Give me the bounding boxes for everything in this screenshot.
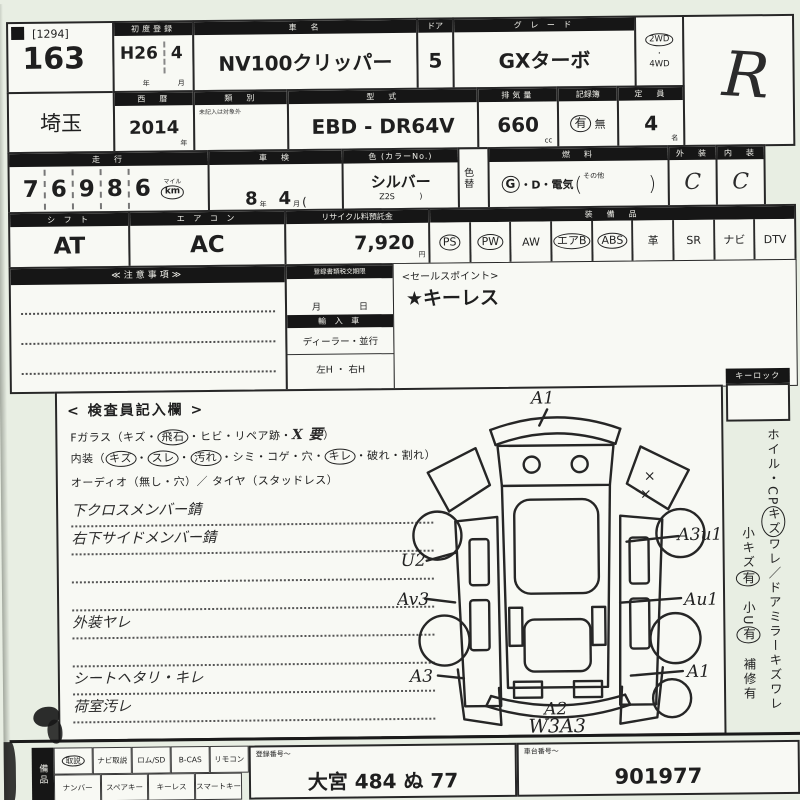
interior-token: 汚れ (190, 450, 221, 466)
type-code-note: 未記入は対象外 (199, 107, 241, 116)
accessory-item: B-CAS (179, 755, 202, 764)
accessory-item: スペアキー (106, 782, 143, 793)
fuel-paren-open: ( (574, 172, 582, 196)
auction-sheet: [1294] 163 初度登録 H26 4 年 月 車 名 NV100クリッパー… (0, 0, 800, 800)
year-cell: 西 暦 2014 年 (113, 90, 196, 153)
caution-box: ≪注意事項≫ (9, 264, 288, 394)
aircon-value: AC (130, 224, 284, 266)
accessory-item: キーレス (156, 781, 186, 792)
equipment-item: SR (686, 233, 701, 246)
exterior-grade-label: 外 装 (669, 147, 715, 160)
handwritten-note-line: シートヘタリ・キレ (73, 664, 435, 696)
accessories-tab: 備品 (32, 748, 55, 800)
unit-month: 月 (178, 78, 185, 88)
lot-number: 163 (22, 41, 85, 77)
car-outline (412, 408, 706, 726)
color-value: シルバー (371, 170, 431, 192)
lot-bracket: [1294] (32, 27, 69, 40)
inspector-title: < 検査員記入欄 > (67, 399, 204, 420)
interior-token: 内装（ (71, 452, 106, 465)
shaken-cell: 車 検 8 年 4 月 ( (207, 149, 344, 212)
sidebar-token: ワレ／ドアミラーキズワレ (766, 537, 783, 711)
import-label: 輸 入 車 (287, 314, 393, 328)
mileage-digits: 76986 (18, 168, 156, 209)
damage-label-right-2: Au1 (682, 590, 718, 610)
aircon-cell: エ ア コ ン AC (128, 209, 287, 268)
equipment-item: 革 (647, 232, 658, 248)
car-damage-diagram: A1 × × A3u1 Au1 A1 U2 Av3 A3 A2 W3A3 (395, 386, 724, 737)
accessory-item: ナビ取説 (97, 755, 127, 766)
damage-mark-1: × (644, 468, 656, 484)
grade-cell: グ レ ー ド GXターボ (452, 16, 637, 90)
first-registration-label: 初度登録 (114, 22, 192, 36)
color-code: Z2S (379, 192, 395, 201)
damage-label-front: A1 (529, 388, 554, 408)
interior-line: 内装（キズ・スレ・汚れ・シミ・コゲ・穴・キレ・破れ・割れ） (71, 447, 437, 468)
mileage-digit: 6 (46, 169, 74, 209)
exterior-grade-cell: 外 装 C (667, 145, 718, 208)
documents-label: 登録書類税交期限 (287, 265, 393, 279)
keylock-label: キーロック (726, 368, 790, 384)
capacity-cell: 定 員 4 名 (617, 85, 686, 148)
km-unit: km (161, 186, 185, 199)
color-cell: 色 (カラーNo.) シルバー Z2S ) (341, 147, 460, 210)
sidebar-note-line-1: ホイル・CPキズワレ／ドアミラーキズワレ (760, 428, 787, 728)
interior-token: スレ (148, 450, 179, 466)
accessory-item: 取説 (62, 755, 85, 767)
drivetrain-cell: 2WD ・ 4WD (634, 15, 685, 88)
color-change-label: 色替 (459, 149, 475, 207)
accessories-row-1: 取説ナビ取説ロム/SDB-CASリモコン (54, 746, 249, 775)
mileage-digit: 6 (130, 168, 156, 208)
handwritten-note-line: 外装ヤレ (72, 608, 434, 640)
car-name: NV100クリッパー (194, 33, 417, 90)
handwritten-note-line (72, 580, 434, 612)
grade-value: GXターボ (454, 31, 635, 88)
color-paren: ) (419, 191, 422, 200)
lot-cell: [1294] 163 (6, 21, 115, 94)
accessory-item: スマートキー (196, 781, 241, 792)
mile-unit: マイル (163, 177, 181, 186)
shaken-year: 8 (245, 188, 258, 209)
equipment-cell: 装 備 品 PSPWAWエアBABS革SRナビDTV (428, 204, 797, 265)
documents-box: 登録書類税交期限 月 日 輸 入 車 ディーラー・並行 左H ・ 右H (285, 263, 396, 391)
fuel-options: ・D・電気 (520, 176, 573, 193)
first-registration-cell: 初度登録 H26 4 年 月 (112, 20, 195, 93)
interior-grade-cell: 内 装 C (715, 144, 766, 207)
shaken-paren: ( (302, 195, 307, 209)
ink-blot (47, 720, 62, 744)
sales-point-value: ★キーレス (406, 283, 499, 311)
unit-year: 年 (143, 79, 150, 89)
mileage-digit: 9 (74, 169, 102, 209)
record-book-cell: 記録簿 有 無 (557, 86, 620, 149)
handwritten-note-line (72, 636, 434, 668)
auction-grade-cell: R (682, 14, 795, 147)
exterior-grade: C (670, 160, 716, 205)
shift-label: シ フ ト (10, 213, 128, 227)
prefecture-cell: 埼玉 (7, 91, 116, 154)
equipment-item: PS (439, 234, 461, 250)
drive-4wd: 4WD (649, 59, 669, 69)
registration-number: 大宮 484 ぬ 77 (251, 745, 516, 800)
handwritten-grade: R (720, 37, 771, 113)
interior-grade-label: 内 装 (717, 146, 763, 159)
chassis-number-cell: 車台番号〜 901977 (517, 740, 800, 797)
interior-token: ・ (136, 452, 148, 465)
interior-token: キズ (105, 451, 136, 467)
sidebar-note-line-2: 小キズ有 小U有 補修有 (735, 526, 761, 766)
year-unit: 年 (180, 138, 187, 148)
mileage-digit: 8 (102, 168, 130, 208)
drive-2wd: 2WD (645, 33, 673, 46)
shaken-month: 4 (278, 188, 291, 209)
interior-token: キレ (325, 448, 356, 464)
month-unit: 月 (312, 300, 321, 313)
keylock-box (726, 383, 790, 422)
record-no: 無 (595, 115, 606, 131)
caution-line (21, 340, 275, 345)
sidebar-token: 小キズ (740, 526, 755, 570)
interior-grade: C (718, 159, 764, 204)
color-change-cell: 色替 (457, 147, 490, 209)
capacity-unit: 名 (671, 133, 678, 143)
glass-token: ・ヒビ・リペア跡・ (188, 429, 292, 443)
handwritten-notes: 下クロスメンバー錆右下サイドメンバー錆外装ヤレシートヘタリ・キレ荷室汚レ (71, 496, 436, 742)
accessory-item: リモコン (214, 754, 244, 765)
mileage-cell: 走 行 76986 マイル km (7, 150, 210, 214)
type-code-label: 類 別 (195, 91, 287, 105)
fuel-cell: 燃 料 G ・D・電気 ( その他 ) (487, 145, 670, 209)
registration-number-cell: 登録番号〜 大宮 484 ぬ 77 (249, 743, 518, 800)
caution-line (21, 310, 275, 315)
damage-label-right-3: A1 (685, 662, 710, 682)
equipment-item: DTV (764, 232, 787, 245)
year-label: 西 暦 (115, 92, 193, 106)
day-unit: 日 (359, 299, 368, 312)
door-cell: ドア 5 (416, 17, 455, 89)
displacement-label: 排気量 (479, 88, 557, 102)
auction-sheet-scan: [1294] 163 初度登録 H26 4 年 月 車 名 NV100クリッパー… (0, 0, 800, 800)
handwritten-note-line: 荷室汚レ (73, 692, 435, 724)
equipment-list: PSPWAWエアBABS革SRナビDTV (430, 219, 794, 263)
fuel-paren-close: ) (648, 171, 656, 195)
recycle-fee-cell: リサイクル料預託金 7,920 円 (284, 208, 431, 267)
car-name-cell: 車 名 NV100クリッパー (192, 18, 419, 92)
first-registration-era: H26 (118, 41, 165, 73)
record-yes: 有 (571, 115, 591, 132)
recycle-fee-value: 7,920 (286, 223, 428, 264)
sidebar-token: 有 (736, 626, 760, 643)
handwritten-note-line (72, 552, 434, 584)
model-code-cell: 型 式 EBD - DR64V (287, 87, 480, 151)
accessories-tab-label: 備品 (36, 764, 49, 786)
damage-label-left-3: A3 (408, 667, 433, 687)
sidebar-token: 有 (736, 570, 760, 587)
scan-edge-blot (4, 742, 17, 800)
glass-token: Fガラス（キズ・ (70, 431, 157, 445)
equipment-item: エアB (553, 233, 591, 249)
displacement-cell: 排気量 660 cc (477, 86, 560, 149)
equipment-item: ナビ (723, 231, 745, 247)
glass-token: ） (323, 429, 335, 442)
equipment-item: ABS (597, 233, 627, 249)
caution-label: ≪注意事項≫ (11, 266, 285, 285)
equipment-item: PW (478, 234, 504, 250)
accessory-item: ナンバー (62, 782, 92, 793)
shift-cell: シ フ ト AT (8, 211, 131, 269)
color-label: 色 (カラーNo.) (343, 149, 457, 163)
mileage-digit: 7 (18, 169, 46, 209)
corner-mark (11, 27, 24, 40)
door-label: ドア (418, 19, 452, 32)
glass-token: 飛石 (157, 429, 188, 445)
accessory-item: ロム/SD (137, 754, 165, 765)
sidebar-token: 小U (741, 586, 756, 626)
audio-line: オーディオ（無し・穴）／ タイヤ（スタッドレス） (71, 472, 339, 491)
glass-line: Fガラス（キズ・飛石・ヒビ・リペア跡・X 要） (70, 424, 335, 447)
sidebar-token: 補修有 (741, 643, 757, 701)
model-code: EBD - DR64V (289, 102, 477, 149)
sales-point-label: <セールスポイント> (402, 267, 499, 283)
type-code-cell: 類 別 未記入は対象外 (193, 89, 290, 152)
recycle-fee-unit: 円 (418, 250, 425, 260)
handwritten-note-line: 下クロスメンバー錆 (71, 496, 433, 528)
record-book-label: 記録簿 (559, 88, 617, 102)
interior-token: ・ (179, 451, 191, 464)
caution-line (22, 370, 276, 375)
door-count: 5 (418, 32, 453, 87)
shaken-year-unit: 年 (260, 199, 267, 209)
damage-mark-2: × (640, 486, 652, 502)
damage-label-left-1: U2 (401, 551, 426, 571)
import-options: ディーラー・並行 (287, 327, 393, 354)
damage-labels: A1 × × A3u1 Au1 A1 U2 Av3 A3 A2 W3A3 (395, 387, 724, 737)
accessories-row-2: ナンバースペアキーキーレススマートキー (54, 773, 242, 800)
first-registration-month: 4 (165, 41, 189, 65)
damage-label-left-2: Av3 (395, 590, 429, 610)
shaken-month-unit: 月 (293, 199, 300, 209)
handwritten-note-line: 右下サイドメンバー錆 (71, 524, 433, 556)
equipment-item: AW (522, 235, 540, 248)
handle-options: 左H ・ 右H (288, 353, 394, 383)
interior-token: ・シミ・コゲ・穴・ (221, 450, 325, 464)
prefecture: 埼玉 (9, 93, 114, 152)
fuel-other-label: その他 (583, 170, 604, 180)
sidebar-token: ホイル・CP (765, 428, 781, 506)
glass-token: X 要 (292, 427, 323, 443)
fuel-gasoline: G (501, 176, 519, 193)
damage-label-right-1: A3u1 (675, 525, 722, 545)
displacement-unit: cc (545, 136, 553, 144)
shift-value: AT (10, 226, 128, 267)
capacity-label: 定 員 (619, 87, 683, 101)
sidebar-token: キズ (761, 506, 785, 537)
chassis-number: 901977 (519, 742, 799, 797)
